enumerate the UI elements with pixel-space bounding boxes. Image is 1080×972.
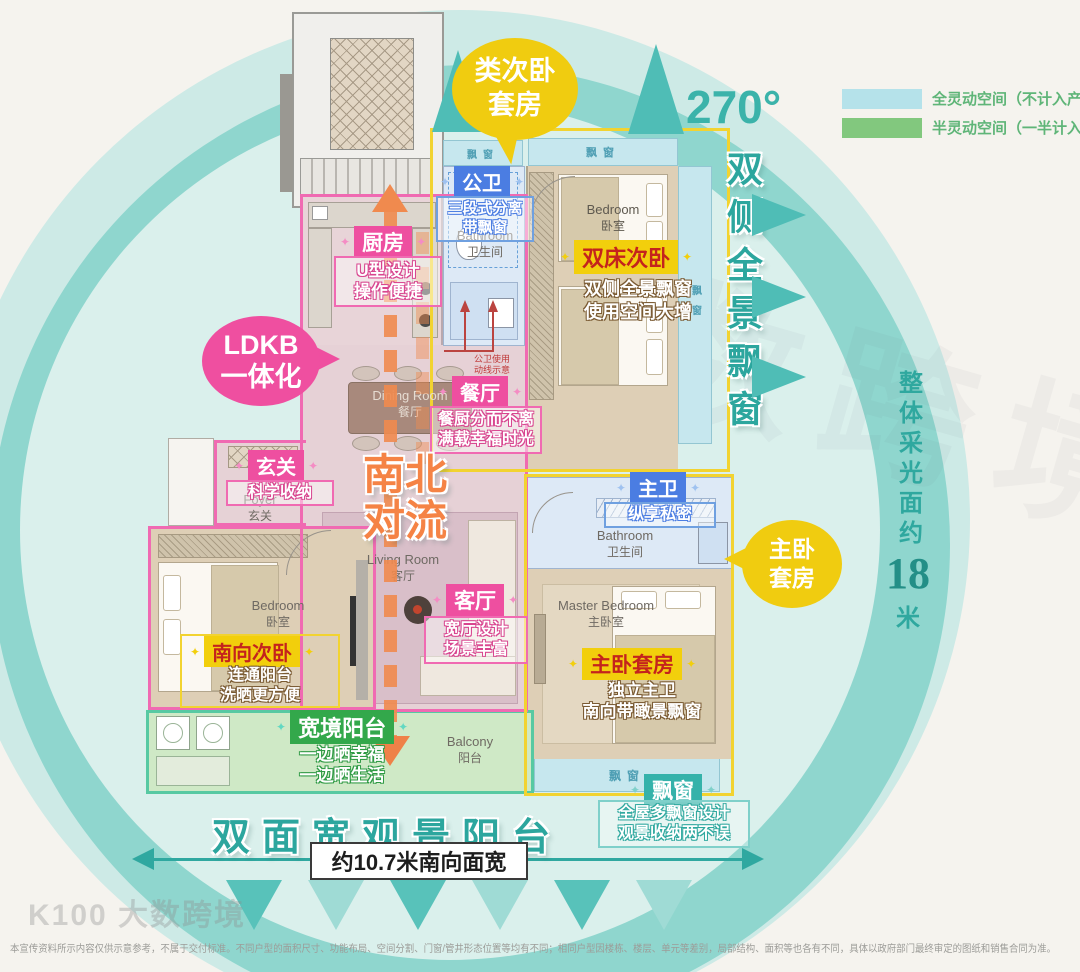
sparkle-icon: ✦	[340, 236, 350, 248]
sparkle-icon: ✦	[686, 658, 696, 670]
kitchen-tag-title: 厨房	[354, 226, 412, 258]
sparkle-icon: ✦	[432, 594, 442, 606]
daylight-right-arrow-icon	[752, 276, 806, 318]
room-label-living: Living Room客厅	[348, 552, 458, 584]
sparkle-icon: ✦	[706, 784, 716, 796]
sparkle-icon: ✦	[438, 386, 448, 398]
bath-route-line	[464, 312, 466, 352]
south-bedroom-tag: ✦ 南向次卧 ✦	[190, 636, 314, 667]
legend-row-half-flex: 半灵动空间（一半计入产权面积）	[842, 117, 1080, 138]
room-label-master-bath: Bathroom卫生间	[580, 528, 670, 560]
fan-arrow-down-icon	[472, 880, 528, 930]
washer-drum-icon	[163, 723, 183, 743]
fan-arrow-down-icon	[308, 880, 364, 930]
dining-tag-title: 餐厅	[452, 376, 508, 407]
twin-bedroom-tag-title: 双床次卧	[574, 240, 678, 274]
living-tag-desc: 宽厅设计 场景丰富	[424, 616, 528, 664]
bath-route-arrowhead-icon	[488, 300, 498, 312]
sparkle-icon: ✦	[190, 646, 200, 658]
daylight-right-arrow-icon	[752, 194, 806, 236]
dimension-label: 约10.7米南向面宽	[310, 842, 528, 880]
dining-tag-desc: 餐厨分而不离 满载幸福时光	[430, 406, 542, 454]
twin-bedroom-tag: ✦ 双床次卧 ✦	[560, 240, 692, 274]
sparkle-icon: ✦	[234, 460, 244, 472]
balcony-tag-title: 宽境阳台	[290, 710, 394, 744]
fan-arrow-down-icon	[390, 880, 446, 930]
bath-route-line	[492, 312, 494, 352]
ns-convection-text: 南北 对流	[352, 452, 458, 544]
legend-swatch-full-flex	[842, 89, 922, 109]
bath-route-label: 公卫使用 动线示意	[474, 354, 510, 376]
sparkle-icon: ✦	[690, 482, 700, 494]
sparkle-icon: ✦	[398, 721, 408, 733]
sparkle-icon: ✦	[560, 251, 570, 263]
secondary-suite-balloon: 类次卧 套房	[452, 38, 578, 140]
entry-alcove	[168, 438, 214, 526]
living-tag-title: 客厅	[446, 584, 504, 616]
sparkle-icon: ✦	[512, 386, 522, 398]
master-bedroom-tag: ✦ 主卧套房 ✦	[568, 648, 696, 680]
master-bath-tag: ✦ 主卫 ✦	[616, 472, 700, 503]
dimension-arrow-right-icon	[742, 848, 764, 870]
floorplan-poster: 大数跨境 飘窗 飘窗 飘窗 飘窗	[0, 0, 1080, 972]
room-label-balcony: Balcony阳台	[428, 734, 512, 766]
room-label-bedroom-right: Bedroom卧室	[568, 202, 658, 234]
sparkle-icon: ✦	[276, 721, 286, 733]
balcony-tag-desc: 一边晒幸福 一边晒生活	[282, 744, 402, 787]
guest-bath-tag-title: 公卫	[454, 166, 510, 197]
sparkle-icon: ✦	[440, 176, 450, 188]
kitchen-tag-desc: U型设计 操作便捷	[334, 256, 442, 307]
elevator-box	[330, 38, 414, 150]
foyer-tag: ✦ 玄关 ✦	[234, 450, 318, 481]
living-tag: ✦ 客厅 ✦	[432, 584, 518, 616]
bath-route-arrowhead-icon	[460, 300, 470, 312]
foyer-tag-desc: 科学收纳	[226, 480, 334, 506]
south-bedroom-tag-title: 南向次卧	[204, 636, 300, 667]
dryer-drum-icon	[203, 723, 223, 743]
sparkle-icon: ✦	[514, 176, 524, 188]
laundry-sink	[156, 756, 230, 786]
logo-watermark: K100 大数跨境	[28, 890, 246, 934]
sparkle-icon: ✦	[568, 658, 578, 670]
legend: 全灵动空间（不计入产权面积） 半灵动空间（一半计入产权面积）	[842, 88, 1080, 146]
sparkle-icon: ✦	[308, 460, 318, 472]
balcony-tag: ✦ 宽境阳台 ✦	[276, 710, 408, 744]
master-bedroom-tag-title: 主卧套房	[582, 648, 682, 680]
guest-bath-tag-desc: 三段式分离 带飘窗	[436, 196, 534, 242]
disclaimer-text: 本宣传资料所示内容仅供示意参考，不属于交付标准。不同户型的面积尺寸、功能布局、空…	[10, 940, 1010, 955]
sparkle-icon: ✦	[416, 236, 426, 248]
sparkle-icon: ✦	[616, 482, 626, 494]
daylight-prefix: 整体采光面约	[891, 370, 926, 550]
sparkle-icon: ✦	[304, 646, 314, 658]
daylight-callout: 整体采光面约 18 米	[886, 370, 930, 633]
sparkle-icon: ✦	[682, 251, 692, 263]
legend-label-full-flex: 全灵动空间（不计入产权面积）	[932, 88, 1080, 109]
ldkb-balloon: LDKB 一体化	[202, 316, 320, 406]
bay-window-tag-desc: 全屋多飘窗设计 观景收纳两不误	[598, 800, 750, 848]
sparkle-icon: ✦	[630, 784, 640, 796]
room-label-master-bedroom: Master Bedroom主卧室	[536, 598, 676, 630]
dimension-arrow-left-icon	[132, 848, 154, 870]
south-bedroom-tag-desc: 连通阳台 洗晒更方便	[184, 666, 336, 706]
airflow-up-arrow-icon	[628, 44, 684, 134]
legend-swatch-half-flex	[842, 118, 922, 138]
fan-arrow-down-icon	[554, 880, 610, 930]
dining-tag: ✦ 餐厅 ✦	[438, 376, 522, 407]
master-bath-tag-title: 主卫	[630, 472, 686, 503]
bath-route-line	[444, 350, 494, 352]
master-bedroom-tag-desc: 独立主卫 南向带瞰景飘窗	[550, 680, 734, 723]
wall-segment	[280, 74, 293, 192]
angle-270-text: 270°	[686, 80, 781, 134]
master-suite-balloon: 主卧 套房	[742, 520, 842, 608]
room-label-bedroom-left: Bedroom卧室	[238, 598, 318, 630]
legend-row-full-flex: 全灵动空间（不计入产权面积）	[842, 88, 1080, 109]
ns-flow-arrowhead-up-icon	[372, 184, 408, 212]
kitchen-tag: ✦ 厨房 ✦	[340, 226, 426, 258]
daylight-right-arrow-icon	[752, 356, 806, 398]
twin-bedroom-tag-desc: 双侧全景飘窗 使用空间大增	[552, 278, 724, 323]
daylight-unit: 米	[896, 598, 920, 633]
fan-arrow-down-icon	[636, 880, 692, 930]
guest-bath-tag: ✦ 公卫 ✦	[440, 166, 524, 197]
daylight-value: 18	[886, 550, 930, 598]
foyer-tag-title: 玄关	[248, 450, 304, 481]
legend-label-half-flex: 半灵动空间（一半计入产权面积）	[932, 117, 1080, 138]
sparkle-icon: ✦	[508, 594, 518, 606]
master-bath-tag-desc: 纵享私密	[604, 502, 716, 528]
